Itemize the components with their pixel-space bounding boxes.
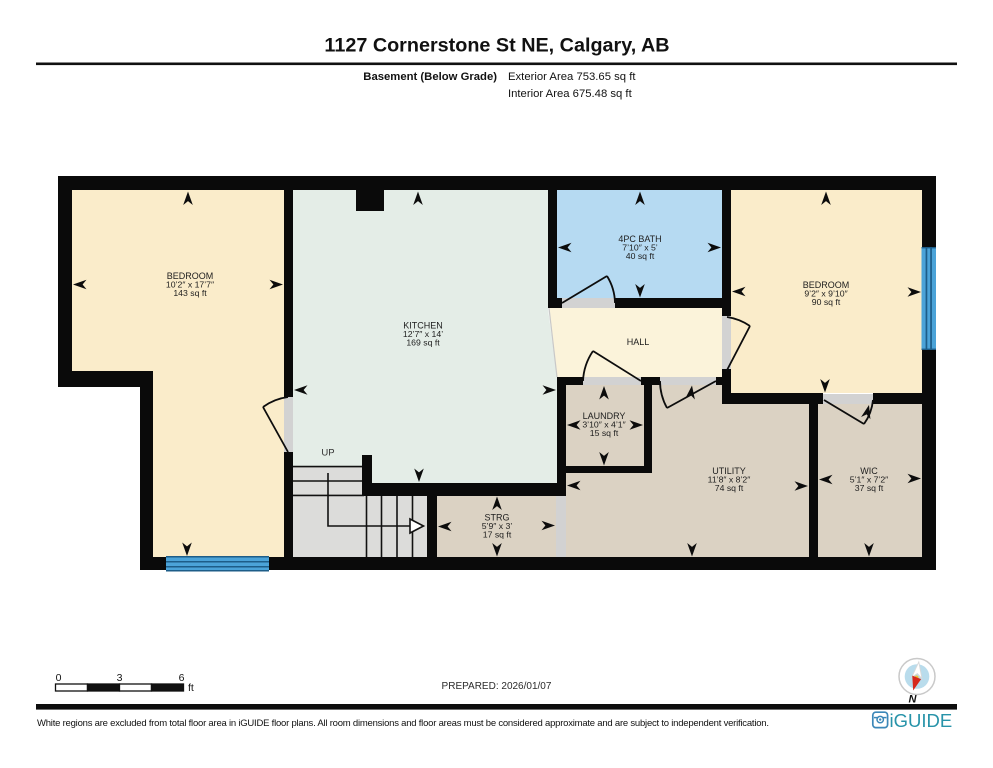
- svg-text:1127 Cornerstone St NE, Calgar: 1127 Cornerstone St NE, Calgary, AB: [324, 35, 669, 57]
- svg-text:40 sq ft: 40 sq ft: [626, 251, 655, 261]
- svg-text:Interior Area 675.48 sq ft: Interior Area 675.48 sq ft: [508, 88, 633, 100]
- svg-text:Exterior Area 753.65 sq ft: Exterior Area 753.65 sq ft: [508, 71, 636, 83]
- svg-text:iGUIDE: iGUIDE: [890, 710, 953, 731]
- svg-text:ft: ft: [188, 682, 194, 694]
- svg-text:Basement (Below Grade): Basement (Below Grade): [363, 71, 497, 83]
- svg-text:37 sq ft: 37 sq ft: [855, 483, 884, 493]
- svg-text:143 sq ft: 143 sq ft: [173, 288, 207, 298]
- svg-text:6: 6: [179, 672, 185, 684]
- svg-text:15 sq ft: 15 sq ft: [590, 428, 619, 438]
- svg-text:169 sq ft: 169 sq ft: [406, 338, 440, 348]
- svg-text:UP: UP: [321, 448, 334, 459]
- svg-text:N: N: [909, 693, 918, 705]
- svg-text:17 sq ft: 17 sq ft: [483, 530, 512, 540]
- svg-text:90 sq ft: 90 sq ft: [812, 297, 841, 307]
- svg-text:74 sq ft: 74 sq ft: [715, 483, 744, 493]
- svg-text:3: 3: [117, 672, 123, 684]
- svg-text:PREPARED: 2026/01/07: PREPARED: 2026/01/07: [442, 681, 552, 692]
- svg-text:HALL: HALL: [627, 337, 650, 347]
- svg-text:White regions are excluded fro: White regions are excluded from total fl…: [37, 718, 769, 729]
- svg-text:0: 0: [56, 672, 62, 684]
